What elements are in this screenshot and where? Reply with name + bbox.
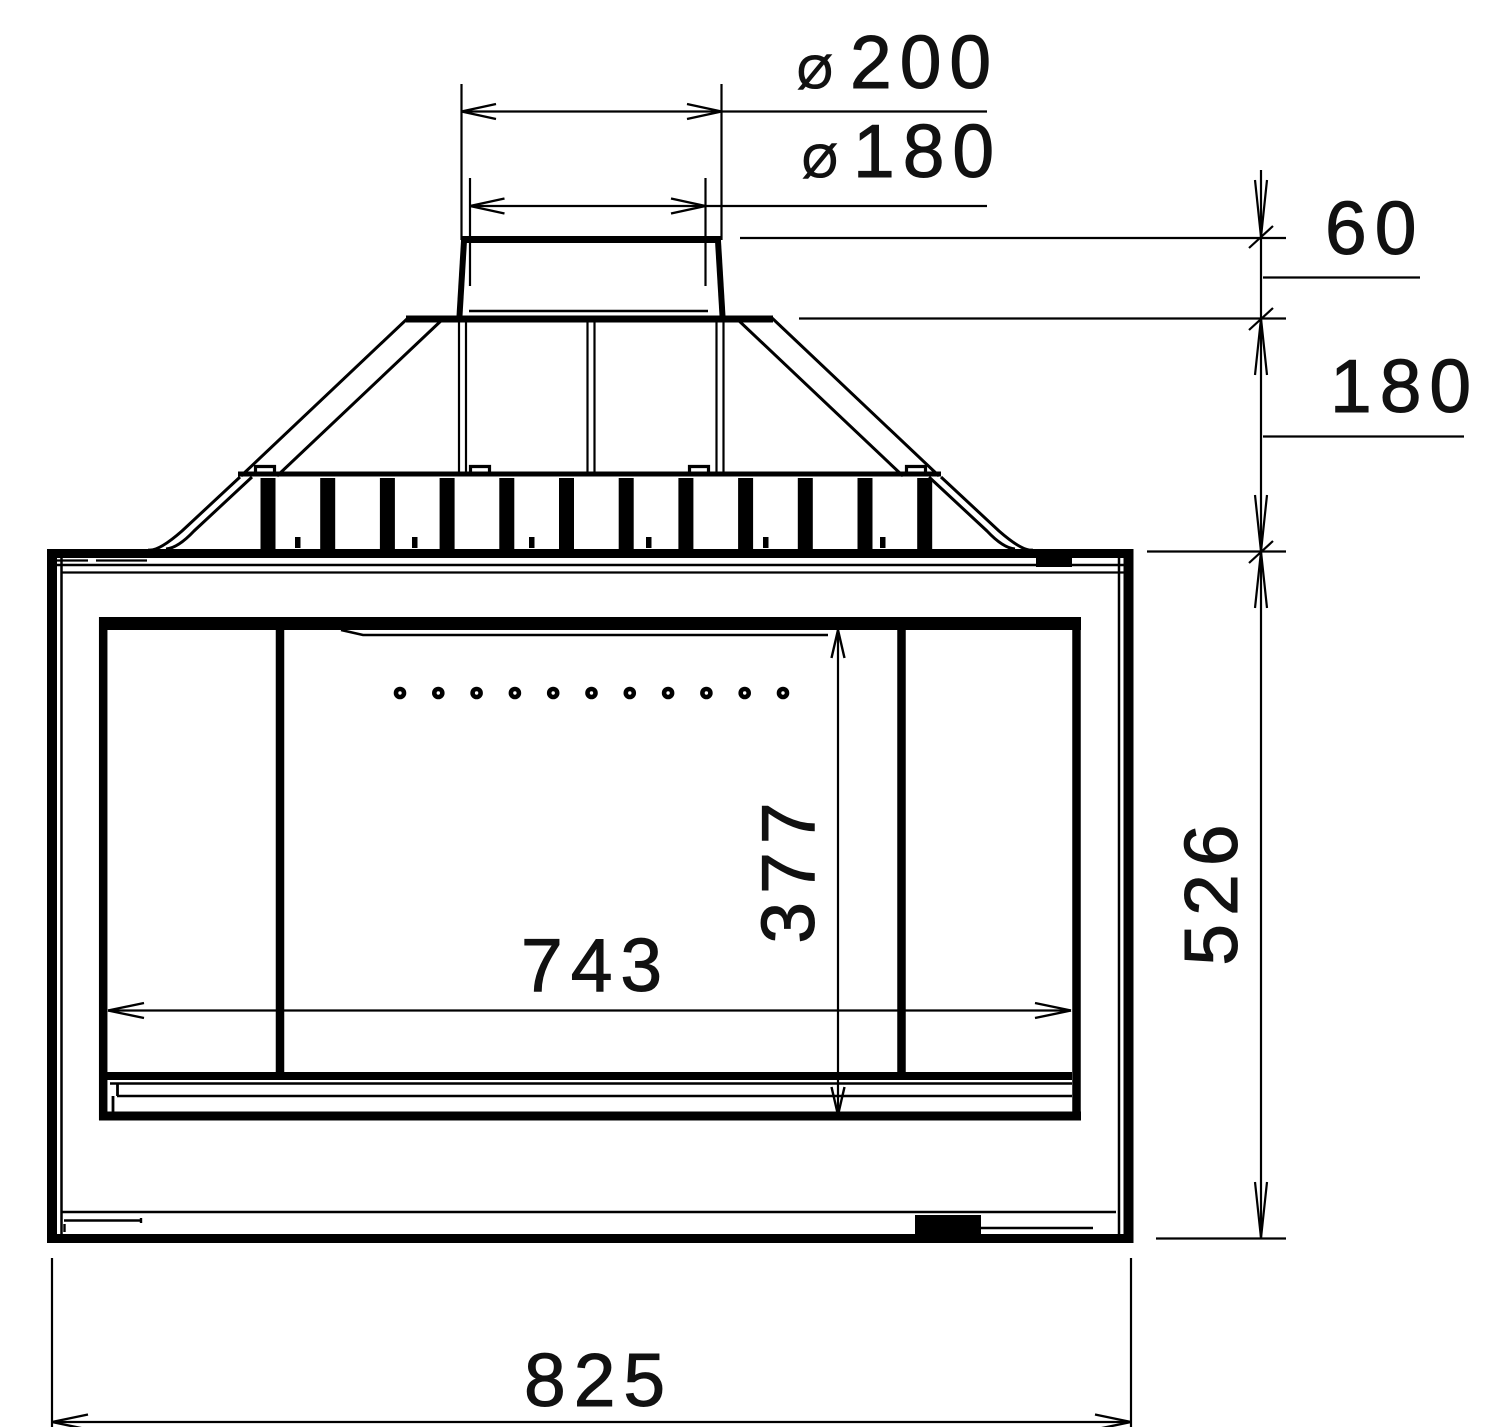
svg-text:180: 180 [1330, 344, 1479, 428]
svg-text:180: 180 [853, 109, 1002, 193]
svg-text:526: 526 [1169, 816, 1253, 965]
svg-text:60: 60 [1325, 186, 1424, 270]
svg-text:Ø: Ø [797, 46, 835, 98]
svg-text:743: 743 [521, 923, 670, 1007]
svg-text:200: 200 [850, 20, 999, 104]
svg-text:825: 825 [524, 1338, 673, 1422]
svg-text:377: 377 [746, 794, 830, 943]
svg-text:Ø: Ø [802, 135, 840, 187]
